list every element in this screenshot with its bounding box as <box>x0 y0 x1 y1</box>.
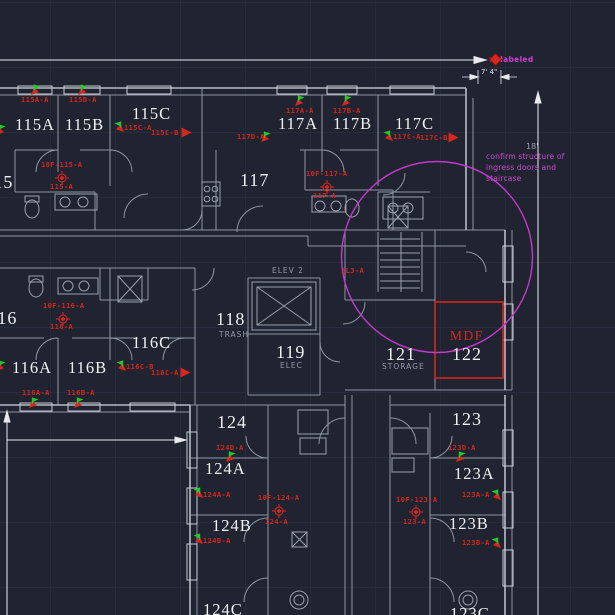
horn-strobe-icon <box>31 84 42 96</box>
room-label-123A: 123A <box>454 466 495 483</box>
staircase-note[interactable]: confirm structure of ingress doors and s… <box>486 151 564 184</box>
horn-strobe-icon <box>0 360 7 372</box>
area-label-elec: ELEC <box>280 362 303 370</box>
device-label-124B-A: 124B-A <box>203 538 231 545</box>
device-label-115-A: 115-A <box>50 184 73 191</box>
room-label-124A: 124A <box>205 461 246 478</box>
device-label-117C-A: 117C-A <box>393 134 421 141</box>
device-label-123B-A: 123B-A <box>462 540 490 547</box>
device-label-117-A: 117-A <box>313 193 336 200</box>
horn-strobe-icon <box>78 84 89 96</box>
horn-strobe-icon <box>226 451 237 463</box>
room-label-116: 116 <box>0 309 17 327</box>
horn-strobe-icon <box>115 360 126 372</box>
area-label-trash: TRASH <box>219 331 249 339</box>
device-label-10F-115-A: 10F-115-A <box>41 162 83 169</box>
device-label-117B-A: 117B-A <box>333 108 361 115</box>
device-label-10F-124-A: 10F-124-A <box>258 495 300 502</box>
room-label-117B: 117B <box>333 116 372 133</box>
device-label-117A-A: 117A-A <box>286 108 314 115</box>
height-dimension-text: 18' <box>526 143 538 151</box>
room-label-123B: 123B <box>449 516 489 533</box>
device-label-10F-123-A: 10F-123-A <box>396 497 438 504</box>
device-label-116A-A: 116A-A <box>22 390 50 397</box>
smoke-detector-icon <box>272 504 286 518</box>
arrow-right-icon <box>448 132 459 143</box>
room-label-118: 118 <box>216 310 245 328</box>
horn-strobe-icon <box>0 124 7 136</box>
room-label-115C: 115C <box>132 106 171 123</box>
floorplan-drawing <box>0 0 615 615</box>
diamond-marker-icon <box>489 53 502 66</box>
mdf-room-label[interactable]: MDF <box>450 329 484 343</box>
device-label-123A-A: 123A-A <box>462 492 490 499</box>
cad-canvas[interactable]: 115115A115B115C117117A117B117C116116A116… <box>0 0 615 615</box>
horn-strobe-icon <box>342 95 353 107</box>
area-label-elev-2: ELEV 2 <box>272 267 304 275</box>
horn-strobe-icon <box>490 537 501 549</box>
horn-strobe-icon <box>490 489 501 501</box>
horn-strobe-icon <box>29 397 40 409</box>
room-label-116A: 116A <box>12 360 52 377</box>
horn-strobe-icon <box>113 121 124 133</box>
horn-strobe-icon <box>261 131 272 143</box>
device-label-116B-A: 116B-A <box>67 390 95 397</box>
room-label-116B: 116B <box>68 360 107 377</box>
room-label-119: 119 <box>276 343 305 361</box>
area-label-storage: STORAGE <box>382 363 425 371</box>
arrow-right-icon <box>181 127 192 138</box>
room-label-116C: 116C <box>132 335 171 352</box>
room-label-115: 115 <box>0 173 13 191</box>
horn-strobe-icon <box>295 95 306 107</box>
unlabeled-annotation[interactable]: unlabeled <box>489 56 534 64</box>
horn-strobe-icon <box>74 397 85 409</box>
device-label-115C-A: 115C-A <box>124 125 152 132</box>
room-label-122: 122 <box>452 345 482 363</box>
room-label-117C: 117C <box>395 116 434 133</box>
device-label-116C-A: 116C-A <box>151 370 179 377</box>
device-label-115C-B: 115C-B <box>151 130 179 137</box>
room-label-123: 123 <box>452 410 482 428</box>
room-label-124: 124 <box>217 413 247 431</box>
device-label-123-A: 123-A <box>403 519 426 526</box>
horn-strobe-icon <box>192 487 203 499</box>
device-label-115B-A: 115B-A <box>69 97 97 104</box>
device-label-116-A: 116-A <box>50 324 73 331</box>
room-label-123C: 123C <box>450 606 490 615</box>
arrow-right-icon <box>180 367 191 378</box>
device-label-115A-A: 115A-A <box>21 97 49 104</box>
device-label-117C-B: 117C-B <box>420 135 448 142</box>
horn-strobe-icon <box>192 533 203 545</box>
device-label-1L3-A: 1L3-A <box>341 268 364 275</box>
room-label-115B: 115B <box>65 117 104 134</box>
horn-strobe-icon <box>456 451 467 463</box>
device-label-124-A: 124-A <box>265 519 288 526</box>
room-label-121: 121 <box>386 345 416 363</box>
horn-strobe-icon <box>382 130 393 142</box>
width-dimension-text: 7' 4" <box>481 69 497 76</box>
device-label-124A-A: 124A-A <box>203 492 231 499</box>
room-label-124B: 124B <box>212 518 252 535</box>
smoke-detector-icon <box>409 505 423 519</box>
room-label-115A: 115A <box>15 117 55 134</box>
room-label-117A: 117A <box>278 116 318 133</box>
device-label-10F-116-A: 10F-116-A <box>43 303 85 310</box>
room-label-124C: 124C <box>203 602 243 615</box>
device-label-116C-B: 116C-B <box>126 364 154 371</box>
device-label-10F-117-A: 10F-117-A <box>306 171 348 178</box>
room-label-117: 117 <box>240 171 269 189</box>
